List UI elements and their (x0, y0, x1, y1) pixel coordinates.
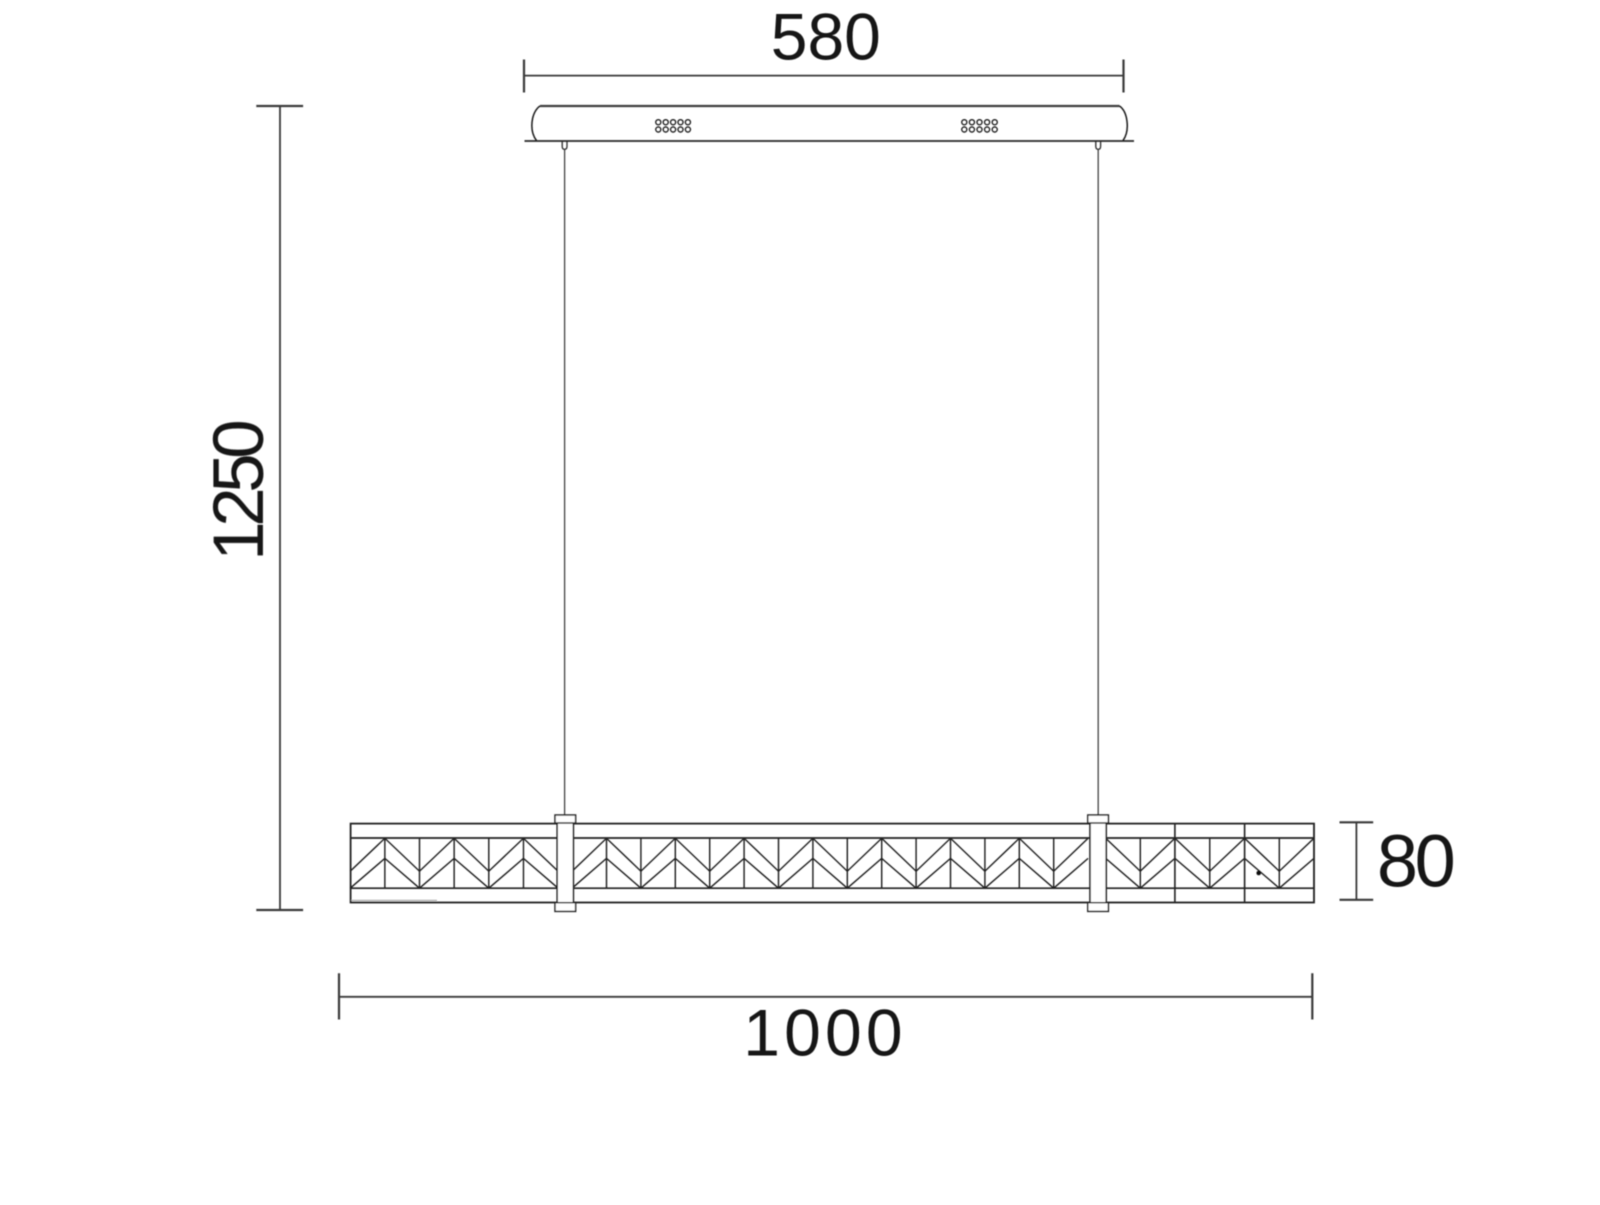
svg-text:580: 580 (771, 0, 881, 74)
svg-text:80: 80 (1377, 820, 1454, 903)
svg-text:1250: 1250 (200, 422, 279, 561)
svg-text:1000: 1000 (743, 996, 907, 1070)
